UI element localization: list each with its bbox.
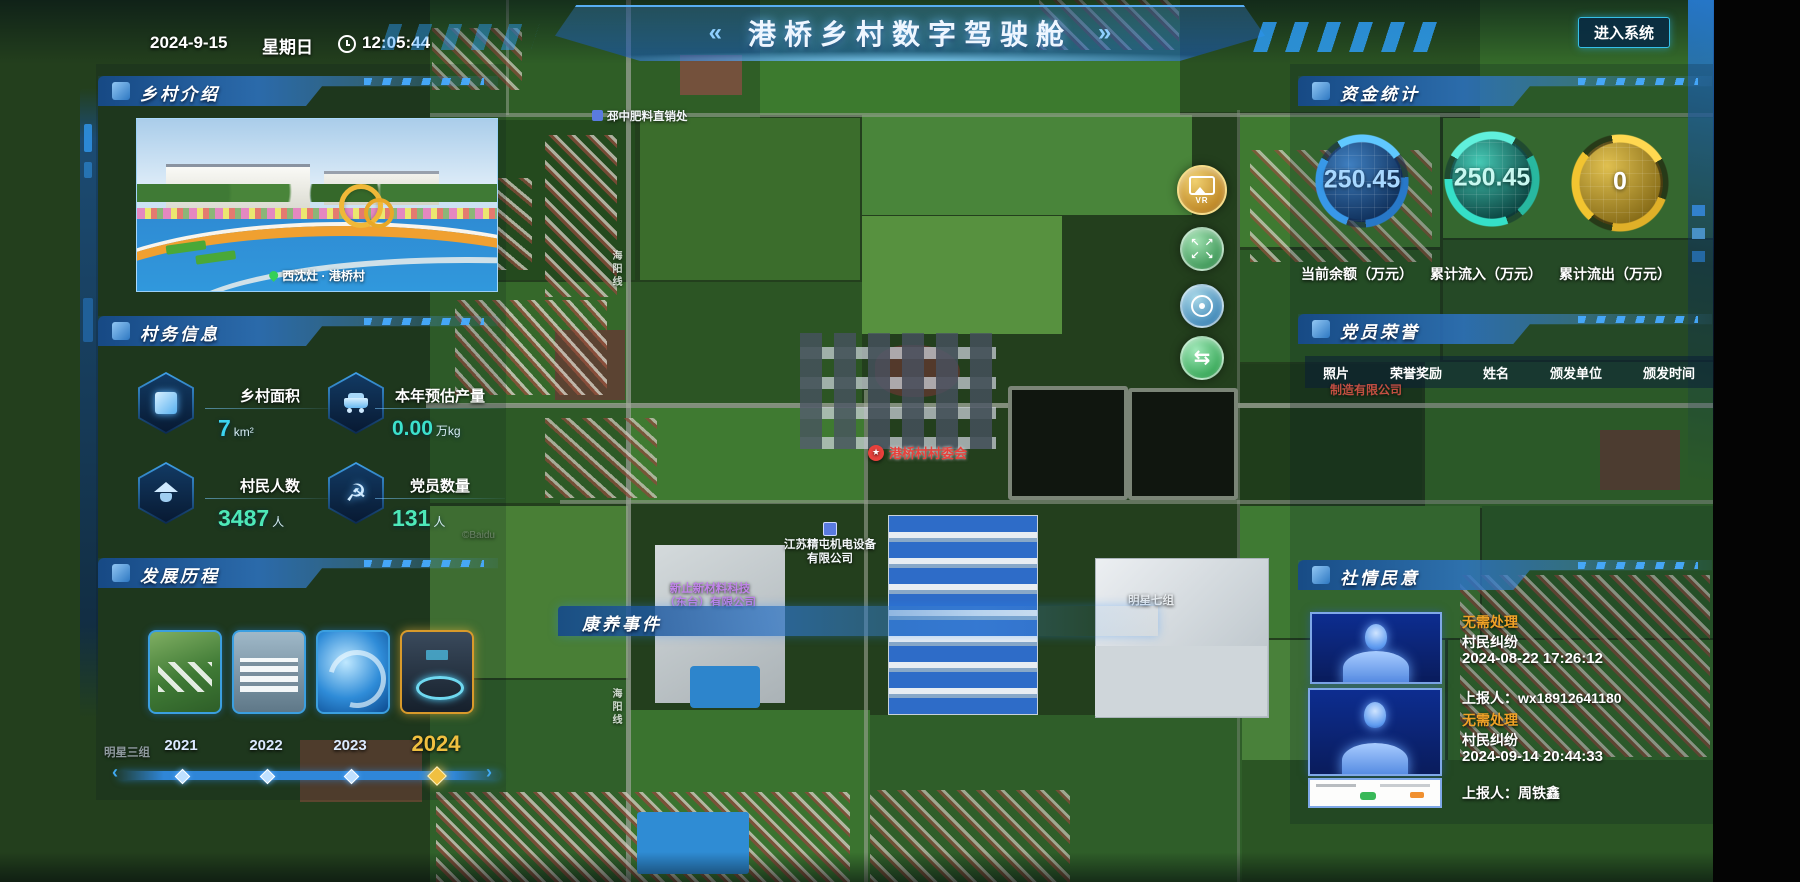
locate-icon xyxy=(1191,295,1213,317)
honor-col-photo: 照片 xyxy=(1323,363,1349,382)
sentiment-reporter: 上报人：wx18912641180 xyxy=(1462,688,1622,708)
panel-header-stripes xyxy=(1578,562,1698,569)
development-thumb-2021[interactable] xyxy=(148,630,222,714)
map-label-committee[interactable]: ★ 港桥村村委会 xyxy=(868,443,967,462)
stat-divider xyxy=(375,408,505,409)
sentiment-item-photo-partial[interactable] xyxy=(1308,778,1442,808)
stat-divider xyxy=(205,498,335,499)
sentiment-status: 无需处理 xyxy=(1462,612,1518,632)
panel-header-stripes xyxy=(1578,78,1698,85)
development-thumb-2024[interactable] xyxy=(400,630,474,714)
stat-value: 7km² xyxy=(218,415,254,442)
year-2024[interactable]: 2024 xyxy=(396,731,476,757)
timeline-right-arrow[interactable]: › xyxy=(486,762,492,783)
panel-corner-deco xyxy=(112,564,130,582)
panel-title: 村务信息 xyxy=(140,320,220,345)
stat-divider xyxy=(375,498,505,499)
gauge-value: 250.45 xyxy=(1443,163,1541,192)
map-tool-locate-button[interactable] xyxy=(1180,284,1224,328)
sentiment-time: 2024-09-14 20:44:33 xyxy=(1462,748,1603,765)
panel-title: 社情民意 xyxy=(1340,564,1420,589)
hologram-person-icon xyxy=(1364,702,1386,728)
title-right-chevrons: » xyxy=(1098,19,1111,47)
panel-corner-deco xyxy=(1312,320,1330,338)
gauge-value: 0 xyxy=(1570,167,1670,196)
photo-caption: 西沈灶 · 港桥村 xyxy=(269,267,365,284)
panel-corner-deco xyxy=(1312,82,1330,100)
location-pin-icon xyxy=(267,269,280,282)
image-icon xyxy=(1189,176,1215,195)
sentiment-time: 2024-08-22 17:26:12 xyxy=(1462,650,1603,667)
panel-header-stripes xyxy=(364,78,484,85)
title-banner: « 港桥乡村数字驾驶舱 » xyxy=(555,5,1265,61)
map-tool-vr-button[interactable]: VR xyxy=(1177,165,1227,215)
panel-title: 乡村介绍 xyxy=(140,80,220,105)
gauge-label-balance: 当前余额（万元） xyxy=(1287,264,1427,284)
map-tool-expand-button[interactable]: ↖↗↙↘ xyxy=(1180,227,1224,271)
development-thumb-2022[interactable] xyxy=(232,630,306,714)
village-photo[interactable]: 西沈灶 · 港桥村 xyxy=(136,118,498,292)
panel-title: 党员荣誉 xyxy=(1340,318,1420,343)
stat-label: 乡村面积 xyxy=(205,385,335,406)
stat-value: 0.00万kg xyxy=(392,417,461,441)
honor-col-date: 颁发时间 xyxy=(1643,363,1695,382)
shop-icon xyxy=(592,110,603,121)
honor-col-award: 荣誉奖励 xyxy=(1390,363,1442,382)
gauge-inflow: 250.45 xyxy=(1443,130,1541,228)
header-deco-left xyxy=(381,24,539,50)
honor-col-unit: 颁发单位 xyxy=(1550,363,1602,382)
header-deco-right xyxy=(1253,22,1438,52)
panel-header-stripes xyxy=(1578,316,1698,323)
map-label-company1[interactable]: 江苏精屯机电设备有限公司 xyxy=(745,522,915,566)
header-weekday: 星期日 xyxy=(262,33,313,58)
panel-corner-deco xyxy=(112,322,130,340)
panel-corner-deco xyxy=(112,82,130,100)
year-2022[interactable]: 2022 xyxy=(231,737,301,754)
gauge-label-inflow: 累计流入（万元） xyxy=(1416,264,1556,284)
panel-title: 资金统计 xyxy=(1340,80,1420,105)
gauge-outflow: 0 xyxy=(1570,133,1670,233)
year-2023[interactable]: 2023 xyxy=(315,737,385,754)
right-black-band xyxy=(1713,0,1800,882)
development-thumb-2023[interactable] xyxy=(316,630,390,714)
panel-health-events-header: 康养事件 xyxy=(558,606,1158,636)
title-left-chevrons: « xyxy=(709,19,722,47)
gauge-label-outflow: 累计流出（万元） xyxy=(1540,264,1690,284)
map-tool-refresh-button[interactable]: ⇆ xyxy=(1180,336,1224,380)
map-label-partial-factory: 制造有限公司 xyxy=(1330,381,1402,398)
sentiment-type: 村民纠纷 xyxy=(1462,730,1518,750)
gauge-balance: 250.45 xyxy=(1314,133,1410,229)
sentiment-item-photo[interactable] xyxy=(1310,612,1442,684)
red-pin-icon: ★ xyxy=(868,445,884,461)
stat-label: 本年预估产量 xyxy=(370,385,510,406)
sentiment-reporter: 上报人：周铁鑫 xyxy=(1462,783,1560,803)
enter-system-button[interactable]: 进入系统 xyxy=(1578,17,1670,48)
map-vignette-bottom xyxy=(0,852,1800,882)
header-date: 2024-9-15 xyxy=(150,33,228,53)
stat-divider xyxy=(205,408,335,409)
timeline-left-arrow[interactable]: ‹ xyxy=(112,762,118,783)
stat-value: 131人 xyxy=(392,505,445,532)
sentiment-status: 无需处理 xyxy=(1462,710,1518,730)
clock-icon xyxy=(338,35,356,53)
panel-title: 发展历程 xyxy=(140,562,220,587)
sentiment-item-photo[interactable] xyxy=(1308,688,1442,776)
stat-value: 3487人 xyxy=(218,505,284,532)
panel-title: 康养事件 xyxy=(582,610,662,635)
hologram-person-icon xyxy=(1365,624,1387,650)
vr-label: VR xyxy=(1195,196,1208,205)
expand-icon: ↖↗↙↘ xyxy=(1190,238,1215,261)
stat-label: 党员数量 xyxy=(375,475,505,496)
sentiment-type: 村民纠纷 xyxy=(1462,632,1518,652)
building-icon xyxy=(823,522,837,536)
panel-corner-deco xyxy=(1312,566,1330,584)
map-label-fertilizer[interactable]: 邳中肥料直销处 xyxy=(592,108,688,124)
dashboard: 邳中肥料直销处 ★ 港桥村村委会 江苏精屯机电设备有限公司 新止新材料科技（东台… xyxy=(0,0,1800,882)
refresh-icon: ⇆ xyxy=(1194,348,1211,368)
map-label-road-top: 海阳线 xyxy=(608,250,623,289)
honor-col-name: 姓名 xyxy=(1483,363,1509,382)
gauge-value: 250.45 xyxy=(1314,165,1410,194)
panel-header-stripes xyxy=(364,560,484,567)
year-2021[interactable]: 2021 xyxy=(146,737,216,754)
panel-header-stripes xyxy=(364,318,484,325)
page-title: 港桥乡村数字驾驶舱 xyxy=(748,13,1072,53)
stat-label: 村民人数 xyxy=(205,475,335,496)
map-label-road-bottom: 海阳线 xyxy=(608,688,623,727)
